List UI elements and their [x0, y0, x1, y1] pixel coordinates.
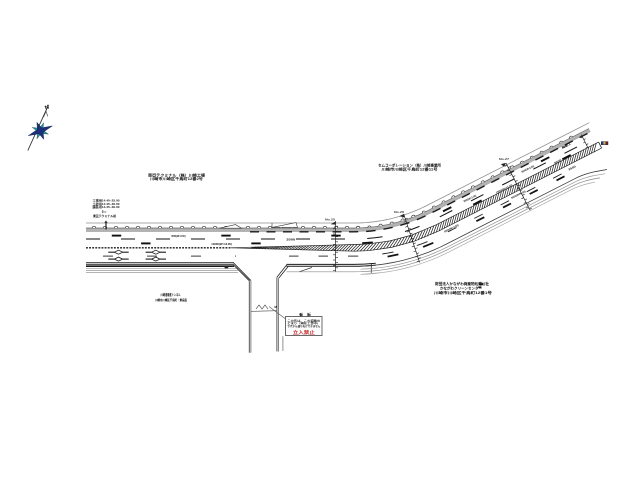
svg-text:川崎市川崎区千鳥町・東扇島: 川崎市川崎区千鳥町・東扇島 — [154, 297, 187, 302]
svg-text:3500(W=3.50): 3500(W=3.50) — [171, 235, 185, 238]
svg-text:No.27: No.27 — [499, 158, 510, 161]
svg-text:13000(W=13.00): 13000(W=13.00) — [211, 243, 232, 246]
svg-text:看 板: 看 板 — [299, 311, 312, 316]
svg-text:No.25: No.25 — [325, 219, 336, 222]
svg-text:川崎市川崎区千鳥町12番1号: 川崎市川崎区千鳥町12番1号 — [433, 290, 493, 295]
svg-text:川崎港海底トンネル: 川崎港海底トンネル — [160, 292, 181, 297]
svg-text:財団法人かながわ廃棄物処理公社: 財団法人かながわ廃棄物処理公社 — [434, 281, 489, 286]
svg-text:3500: 3500 — [286, 238, 296, 241]
svg-text:No.26: No.26 — [394, 211, 405, 214]
svg-text:舗装用14.45~30.00: 舗装用14.45~30.00 — [91, 204, 120, 209]
svg-text:東亞テクミナル前: 東亞テクミナル前 — [93, 213, 116, 218]
svg-text:川崎市川崎区千鳥町12番2号: 川崎市川崎区千鳥町12番2号 — [149, 176, 204, 181]
svg-text:かながわクリーンセンター: かながわクリーンセンター — [440, 285, 482, 290]
svg-text:立入禁止: 立入禁止 — [293, 329, 315, 336]
svg-text:川崎市川崎区千鳥町12番11号: 川崎市川崎区千鳥町12番11号 — [380, 167, 438, 172]
